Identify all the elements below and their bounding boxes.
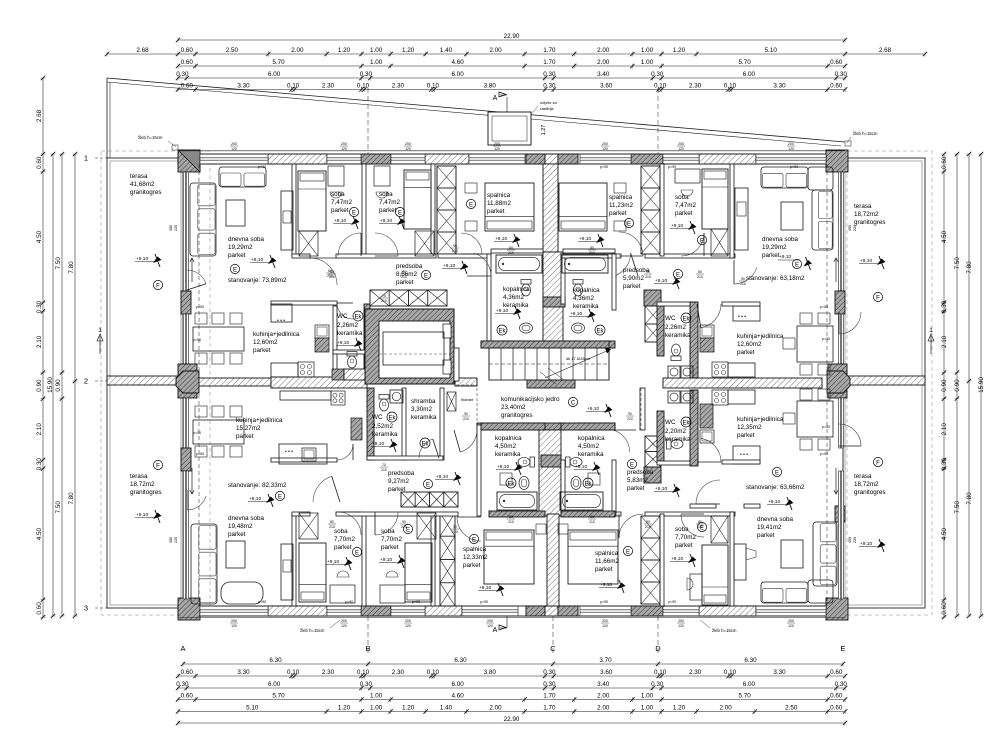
svg-text:90: 90 bbox=[628, 412, 632, 416]
svg-text:0.30: 0.30 bbox=[543, 71, 556, 78]
svg-text:parket: parket bbox=[737, 349, 755, 356]
svg-text:7,47m2: 7,47m2 bbox=[675, 202, 697, 209]
svg-text:70: 70 bbox=[382, 463, 386, 467]
svg-text:granitogres: granitogres bbox=[854, 219, 886, 226]
svg-text:120: 120 bbox=[602, 624, 608, 628]
svg-text:80: 80 bbox=[330, 520, 334, 524]
svg-text:210: 210 bbox=[508, 520, 514, 524]
svg-text:1.40: 1.40 bbox=[440, 705, 453, 712]
svg-text:120: 120 bbox=[341, 624, 347, 628]
svg-text:stanovanje: 82,33m2: stanovanje: 82,33m2 bbox=[228, 482, 287, 489]
svg-text:80: 80 bbox=[509, 515, 513, 519]
svg-text:3.30: 3.30 bbox=[237, 669, 250, 676]
svg-text:120: 120 bbox=[405, 624, 411, 628]
svg-text:1.00: 1.00 bbox=[370, 47, 383, 54]
svg-text:• • •: • • • bbox=[285, 449, 293, 455]
svg-text:120: 120 bbox=[231, 624, 237, 628]
svg-text:7,70m2: 7,70m2 bbox=[675, 534, 697, 541]
svg-text:7,47m2: 7,47m2 bbox=[331, 199, 353, 206]
svg-text:D: D bbox=[655, 644, 661, 653]
svg-text:+9,10: +9,10 bbox=[860, 258, 872, 264]
svg-text:2.30: 2.30 bbox=[689, 669, 702, 676]
svg-text:90: 90 bbox=[464, 412, 468, 416]
svg-text:7.50: 7.50 bbox=[55, 501, 62, 514]
svg-text:0.60: 0.60 bbox=[181, 669, 194, 676]
svg-text:granitogres: granitogres bbox=[854, 489, 886, 496]
svg-text:3.80: 3.80 bbox=[484, 669, 497, 676]
svg-text:2.00: 2.00 bbox=[489, 47, 502, 54]
svg-text:E: E bbox=[398, 210, 402, 216]
svg-text:stanovanje: 73,89m2: stanovanje: 73,89m2 bbox=[228, 277, 287, 284]
svg-text:Ek: Ek bbox=[354, 314, 362, 320]
svg-text:hidrant: hidrant bbox=[461, 397, 474, 402]
svg-text:0.90: 0.90 bbox=[954, 379, 961, 392]
svg-text:terasa: terasa bbox=[854, 203, 872, 210]
svg-text:80: 80 bbox=[509, 246, 513, 250]
svg-text:4.50: 4.50 bbox=[36, 528, 43, 541]
svg-text:120: 120 bbox=[231, 147, 237, 151]
svg-text:soba: soba bbox=[381, 528, 395, 535]
svg-text:WC: WC bbox=[665, 419, 676, 426]
svg-text:1.20: 1.20 bbox=[338, 47, 351, 54]
svg-text:2.00: 2.00 bbox=[291, 47, 304, 54]
svg-text:120: 120 bbox=[788, 624, 794, 628]
svg-text:spalnica: spalnica bbox=[487, 192, 511, 199]
svg-text:E: E bbox=[233, 267, 237, 273]
svg-text:120: 120 bbox=[341, 147, 347, 151]
svg-text:rastlinje: rastlinje bbox=[540, 106, 555, 111]
svg-text:12,60m2: 12,60m2 bbox=[253, 339, 278, 346]
svg-text:2.30: 2.30 bbox=[392, 83, 405, 90]
svg-text:p=90: p=90 bbox=[258, 165, 266, 169]
svg-text:200: 200 bbox=[678, 142, 684, 146]
svg-text:2.30: 2.30 bbox=[322, 83, 335, 90]
svg-text:Ek: Ek bbox=[507, 481, 515, 487]
svg-text:1.00: 1.00 bbox=[370, 59, 383, 66]
svg-text:1.20: 1.20 bbox=[402, 705, 415, 712]
svg-text:p=50: p=50 bbox=[822, 425, 830, 429]
svg-text:90: 90 bbox=[741, 277, 745, 281]
svg-text:keramika: keramika bbox=[337, 330, 363, 337]
svg-text:E: E bbox=[278, 494, 282, 500]
svg-text:5.70: 5.70 bbox=[272, 693, 285, 700]
svg-text:2.00: 2.00 bbox=[597, 47, 610, 54]
svg-text:3.30: 3.30 bbox=[773, 83, 786, 90]
svg-text:parket: parket bbox=[609, 210, 627, 217]
svg-text:parket: parket bbox=[595, 566, 613, 573]
svg-text:1.40: 1.40 bbox=[440, 47, 453, 54]
svg-text:+9,10: +9,10 bbox=[479, 585, 491, 591]
svg-text:5,83m2: 5,83m2 bbox=[627, 477, 649, 484]
svg-text:1.70: 1.70 bbox=[543, 59, 556, 66]
svg-text:210: 210 bbox=[697, 275, 703, 279]
svg-text:5.70: 5.70 bbox=[738, 693, 751, 700]
svg-text:granitogres: granitogres bbox=[130, 489, 162, 496]
svg-text:keramika: keramika bbox=[411, 414, 437, 421]
svg-text:2.30: 2.30 bbox=[322, 669, 335, 676]
svg-text:210: 210 bbox=[381, 299, 387, 303]
svg-text:210: 210 bbox=[627, 417, 633, 421]
svg-text:granitogres: granitogres bbox=[501, 412, 533, 419]
svg-text:0.60: 0.60 bbox=[830, 59, 843, 66]
svg-text:19,29m2: 19,29m2 bbox=[228, 244, 253, 251]
svg-text:• • •: • • • bbox=[277, 318, 285, 324]
svg-text:2.68: 2.68 bbox=[879, 47, 892, 54]
svg-text:210: 210 bbox=[645, 525, 651, 529]
svg-text:120: 120 bbox=[678, 624, 684, 628]
svg-text:1.00: 1.00 bbox=[641, 705, 654, 712]
svg-text:E: E bbox=[775, 470, 779, 476]
svg-text:0.60: 0.60 bbox=[941, 156, 948, 169]
svg-text:parket: parket bbox=[331, 207, 349, 214]
svg-text:6.00: 6.00 bbox=[268, 71, 281, 78]
svg-text:0.30: 0.30 bbox=[360, 71, 373, 78]
svg-text:1.00: 1.00 bbox=[641, 693, 654, 700]
svg-text:0.90: 0.90 bbox=[55, 379, 62, 392]
svg-text:210: 210 bbox=[589, 251, 595, 255]
svg-text:E: E bbox=[426, 482, 430, 488]
svg-text:15,27m2: 15,27m2 bbox=[236, 425, 261, 432]
svg-text:stanovanje: 63,18m2: stanovanje: 63,18m2 bbox=[746, 275, 805, 282]
svg-text:450: 450 bbox=[169, 225, 173, 231]
svg-text:E: E bbox=[840, 644, 845, 653]
svg-text:19,41m2: 19,41m2 bbox=[757, 524, 782, 531]
svg-text:parket: parket bbox=[737, 432, 755, 439]
svg-text:dnevna soba: dnevna soba bbox=[228, 236, 265, 243]
svg-text:spalnica: spalnica bbox=[463, 546, 487, 553]
svg-text:120: 120 bbox=[494, 147, 500, 151]
svg-text:2.30: 2.30 bbox=[392, 669, 405, 676]
svg-text:7.80: 7.80 bbox=[68, 261, 75, 274]
svg-text:0,10: 0,10 bbox=[427, 83, 440, 90]
svg-text:p=90: p=90 bbox=[412, 600, 420, 604]
svg-text:4.50: 4.50 bbox=[941, 230, 948, 243]
svg-text:0,10: 0,10 bbox=[287, 83, 300, 90]
svg-text:predsoba: predsoba bbox=[388, 470, 415, 477]
svg-text:0.30: 0.30 bbox=[543, 681, 556, 688]
svg-text:6.30: 6.30 bbox=[454, 657, 467, 664]
svg-text:predsoba: predsoba bbox=[396, 263, 423, 270]
svg-text:parket: parket bbox=[487, 208, 505, 215]
svg-text:dnevna soba: dnevna soba bbox=[762, 236, 799, 243]
svg-text:WC: WC bbox=[337, 313, 348, 320]
svg-text:3.60: 3.60 bbox=[600, 669, 613, 676]
svg-text:p=90: p=90 bbox=[600, 165, 608, 169]
svg-text:2.68: 2.68 bbox=[36, 109, 43, 122]
svg-text:2.00: 2.00 bbox=[719, 705, 732, 712]
svg-text:2.50: 2.50 bbox=[785, 705, 798, 712]
svg-text:0.30: 0.30 bbox=[360, 681, 373, 688]
svg-text:stanovanje: 63,66m2: stanovanje: 63,66m2 bbox=[746, 484, 805, 491]
svg-text:odprto za: odprto za bbox=[540, 100, 557, 105]
svg-text:predsoba: predsoba bbox=[627, 469, 654, 476]
svg-text:F: F bbox=[876, 295, 880, 301]
svg-text:0.30: 0.30 bbox=[543, 669, 556, 676]
svg-text:6.00: 6.00 bbox=[268, 681, 281, 688]
svg-text:0,10: 0,10 bbox=[357, 83, 370, 90]
svg-text:granitogres: granitogres bbox=[130, 189, 162, 196]
svg-text:6.00: 6.00 bbox=[743, 681, 756, 688]
svg-text:200: 200 bbox=[602, 142, 608, 146]
svg-text:šk 17.5/28cm: šk 17.5/28cm bbox=[566, 356, 590, 361]
svg-text:120: 120 bbox=[678, 147, 684, 151]
svg-text:+9,10: +9,10 bbox=[380, 557, 392, 563]
svg-text:3.60: 3.60 bbox=[600, 83, 613, 90]
svg-text:4.60: 4.60 bbox=[451, 693, 464, 700]
svg-text:200: 200 bbox=[405, 142, 411, 146]
svg-text:E: E bbox=[352, 210, 356, 216]
svg-text:12,35m2: 12,35m2 bbox=[737, 424, 762, 431]
svg-text:220: 220 bbox=[853, 225, 857, 231]
svg-text:200: 200 bbox=[487, 619, 493, 623]
svg-text:0.60: 0.60 bbox=[830, 705, 843, 712]
svg-text:+9,10: +9,10 bbox=[136, 512, 148, 518]
svg-text:2.50: 2.50 bbox=[226, 47, 239, 54]
svg-text:keramika: keramika bbox=[578, 451, 604, 458]
svg-text:+9,10: +9,10 bbox=[334, 218, 346, 224]
svg-text:žleb h=15cm: žleb h=15cm bbox=[138, 135, 163, 140]
svg-text:80: 80 bbox=[698, 520, 702, 524]
svg-text:komunikacijsko jedro: komunikacijsko jedro bbox=[501, 396, 560, 403]
svg-text:7.80: 7.80 bbox=[966, 492, 973, 505]
svg-text:120: 120 bbox=[487, 624, 493, 628]
svg-text:+9,10: +9,10 bbox=[496, 308, 508, 314]
svg-text:parket: parket bbox=[396, 279, 414, 286]
svg-text:kuhinja+jedilnica: kuhinja+jedilnica bbox=[737, 333, 784, 340]
svg-text:A: A bbox=[493, 627, 498, 634]
svg-text:Ek: Ek bbox=[682, 420, 690, 426]
svg-text:2.68: 2.68 bbox=[136, 47, 149, 54]
svg-text:WC: WC bbox=[665, 315, 676, 322]
svg-text:žleb h=15cm: žleb h=15cm bbox=[300, 628, 325, 633]
svg-text:90: 90 bbox=[646, 270, 650, 274]
svg-text:19,48m2: 19,48m2 bbox=[228, 523, 253, 530]
svg-text:0.30: 0.30 bbox=[835, 681, 848, 688]
svg-text:5.70: 5.70 bbox=[272, 59, 285, 66]
svg-text:4,36m2: 4,36m2 bbox=[503, 294, 525, 301]
svg-text:7.50: 7.50 bbox=[55, 257, 62, 270]
svg-text:80: 80 bbox=[590, 246, 594, 250]
svg-text:+9,10: +9,10 bbox=[249, 496, 261, 502]
svg-text:2.10: 2.10 bbox=[941, 335, 948, 348]
svg-text:7.50: 7.50 bbox=[954, 257, 961, 270]
svg-text:parket: parket bbox=[236, 433, 254, 440]
svg-text:0,10: 0,10 bbox=[724, 669, 737, 676]
svg-text:2,26m2: 2,26m2 bbox=[337, 322, 359, 329]
svg-text:1.27: 1.27 bbox=[541, 125, 547, 136]
svg-text:200: 200 bbox=[405, 619, 411, 623]
svg-text:soba: soba bbox=[675, 194, 689, 201]
svg-text:E: E bbox=[630, 462, 634, 468]
svg-text:0.30: 0.30 bbox=[941, 300, 948, 313]
svg-text:11,23m2: 11,23m2 bbox=[609, 202, 634, 209]
svg-text:4.50: 4.50 bbox=[36, 230, 43, 243]
svg-text:80: 80 bbox=[590, 515, 594, 519]
svg-text:terasa: terasa bbox=[854, 473, 872, 480]
svg-text:0,10: 0,10 bbox=[287, 669, 300, 676]
svg-text:220: 220 bbox=[174, 225, 178, 231]
svg-text:0.90: 0.90 bbox=[36, 379, 43, 392]
svg-text:120: 120 bbox=[788, 147, 794, 151]
svg-text:parket: parket bbox=[381, 544, 399, 551]
svg-text:kopalnica: kopalnica bbox=[578, 435, 605, 442]
svg-text:0.30: 0.30 bbox=[651, 681, 664, 688]
svg-text:1.20: 1.20 bbox=[402, 47, 415, 54]
svg-text:+9,10: +9,10 bbox=[860, 541, 872, 547]
svg-text:90: 90 bbox=[402, 270, 406, 274]
svg-text:5.10: 5.10 bbox=[765, 47, 778, 54]
svg-text:200: 200 bbox=[231, 619, 237, 623]
svg-text:2.00: 2.00 bbox=[597, 693, 610, 700]
svg-text:0,10: 0,10 bbox=[357, 669, 370, 676]
svg-text:200: 200 bbox=[494, 142, 500, 146]
svg-text:1.20: 1.20 bbox=[338, 705, 351, 712]
svg-text:0.60: 0.60 bbox=[830, 83, 843, 90]
svg-text:C: C bbox=[571, 400, 576, 406]
svg-text:450: 450 bbox=[848, 537, 852, 543]
svg-text:18,72m2: 18,72m2 bbox=[130, 481, 155, 488]
svg-text:terasa: terasa bbox=[130, 173, 148, 180]
svg-text:p=90: p=90 bbox=[600, 600, 608, 604]
svg-text:p=90: p=90 bbox=[668, 600, 676, 604]
svg-text:dnevna soba: dnevna soba bbox=[757, 516, 794, 523]
svg-text:0.30: 0.30 bbox=[36, 300, 43, 313]
svg-text:7.80: 7.80 bbox=[966, 261, 973, 274]
svg-text:0,10: 0,10 bbox=[427, 669, 440, 676]
svg-text:15.90: 15.90 bbox=[978, 377, 985, 393]
svg-text:0.60: 0.60 bbox=[941, 602, 948, 615]
svg-text:0.30: 0.30 bbox=[835, 71, 848, 78]
svg-text:1.00: 1.00 bbox=[370, 705, 383, 712]
svg-text:4,36m2: 4,36m2 bbox=[573, 295, 595, 302]
svg-text:9,27m2: 9,27m2 bbox=[388, 478, 410, 485]
svg-text:kopalnica: kopalnica bbox=[573, 287, 600, 294]
svg-text:parket: parket bbox=[623, 283, 641, 290]
svg-text:210: 210 bbox=[697, 525, 703, 529]
svg-text:220: 220 bbox=[174, 537, 178, 543]
svg-text:6.00: 6.00 bbox=[743, 71, 756, 78]
svg-text:soba: soba bbox=[379, 191, 393, 198]
svg-text:2,52m2: 2,52m2 bbox=[372, 423, 394, 430]
svg-text:1.00: 1.00 bbox=[641, 59, 654, 66]
svg-text:210: 210 bbox=[508, 251, 514, 255]
svg-text:F: F bbox=[876, 460, 880, 466]
svg-text:70: 70 bbox=[382, 294, 386, 298]
svg-text:0.30: 0.30 bbox=[176, 71, 189, 78]
svg-text:0,10: 0,10 bbox=[724, 83, 737, 90]
svg-text:3.80: 3.80 bbox=[484, 83, 497, 90]
svg-text:+9,10: +9,10 bbox=[136, 256, 148, 262]
svg-text:+9,10: +9,10 bbox=[436, 474, 448, 480]
svg-text:terasa: terasa bbox=[130, 473, 148, 480]
svg-text:0,10: 0,10 bbox=[654, 83, 667, 90]
svg-text:450: 450 bbox=[848, 225, 852, 231]
svg-text:parket: parket bbox=[675, 542, 693, 549]
svg-text:3: 3 bbox=[84, 604, 88, 613]
svg-text:p=50: p=50 bbox=[193, 338, 201, 342]
svg-text:+9,10: +9,10 bbox=[671, 223, 683, 229]
svg-text:p=90: p=90 bbox=[258, 600, 266, 604]
svg-text:keramika: keramika bbox=[495, 451, 521, 458]
svg-text:210: 210 bbox=[452, 530, 458, 534]
svg-text:+9,10: +9,10 bbox=[251, 257, 263, 263]
svg-text:keramika: keramika bbox=[665, 436, 691, 443]
svg-text:Ek: Ek bbox=[682, 316, 690, 322]
svg-text:210: 210 bbox=[589, 520, 595, 524]
svg-text:+9,10: +9,10 bbox=[655, 486, 667, 492]
svg-text:22.90: 22.90 bbox=[504, 716, 520, 723]
svg-text:450: 450 bbox=[169, 537, 173, 543]
svg-text:E: E bbox=[355, 550, 359, 556]
svg-text:1.20: 1.20 bbox=[673, 705, 686, 712]
svg-text:11,66m2: 11,66m2 bbox=[595, 558, 620, 565]
svg-text:A: A bbox=[493, 95, 498, 102]
svg-text:80: 80 bbox=[330, 270, 334, 274]
svg-text:200: 200 bbox=[788, 142, 794, 146]
svg-text:1: 1 bbox=[98, 327, 102, 334]
svg-text:19,29m2: 19,29m2 bbox=[762, 244, 787, 251]
svg-text:0.60: 0.60 bbox=[36, 156, 43, 169]
svg-text:4,50m2: 4,50m2 bbox=[495, 443, 517, 450]
svg-text:F: F bbox=[156, 283, 160, 289]
svg-text:3.40: 3.40 bbox=[597, 71, 610, 78]
svg-text:A: A bbox=[180, 644, 185, 653]
svg-text:+9,10: +9,10 bbox=[579, 236, 591, 242]
svg-text:210: 210 bbox=[740, 282, 746, 286]
svg-text:keramika: keramika bbox=[665, 332, 691, 339]
svg-text:• • •: • • • bbox=[738, 314, 746, 320]
svg-text:keramika: keramika bbox=[573, 303, 599, 310]
svg-text:2.10: 2.10 bbox=[36, 335, 43, 348]
svg-text:+9,10: +9,10 bbox=[380, 218, 392, 224]
svg-text:7,70m2: 7,70m2 bbox=[334, 536, 356, 543]
svg-text:7.50: 7.50 bbox=[954, 501, 961, 514]
svg-text:210: 210 bbox=[329, 275, 335, 279]
svg-text:• • •: • • • bbox=[740, 452, 748, 458]
svg-text:kuhinja+jedilnica: kuhinja+jedilnica bbox=[236, 417, 283, 424]
svg-text:4.50: 4.50 bbox=[941, 528, 948, 541]
svg-text:18,72m2: 18,72m2 bbox=[854, 481, 879, 488]
svg-text:0.60: 0.60 bbox=[181, 693, 194, 700]
svg-text:0.60: 0.60 bbox=[830, 669, 843, 676]
svg-text:0.30: 0.30 bbox=[176, 681, 189, 688]
svg-text:parket: parket bbox=[228, 252, 246, 259]
svg-text:4,50m2: 4,50m2 bbox=[578, 443, 600, 450]
svg-text:+9,10: +9,10 bbox=[327, 559, 339, 565]
svg-text:3.30: 3.30 bbox=[773, 669, 786, 676]
svg-text:F: F bbox=[156, 463, 160, 469]
svg-text:90: 90 bbox=[402, 520, 406, 524]
svg-text:6.30: 6.30 bbox=[744, 657, 757, 664]
svg-text:12,33m2: 12,33m2 bbox=[463, 554, 488, 561]
svg-text:2.30: 2.30 bbox=[689, 83, 702, 90]
svg-text:5,90m2: 5,90m2 bbox=[623, 275, 645, 282]
svg-text:žleb h=15cm: žleb h=15cm bbox=[712, 628, 737, 633]
svg-text:3.70: 3.70 bbox=[599, 657, 612, 664]
svg-text:0.30: 0.30 bbox=[651, 71, 664, 78]
svg-text:parket: parket bbox=[463, 562, 481, 569]
svg-text:+9,10: +9,10 bbox=[655, 278, 667, 284]
svg-text:parket: parket bbox=[379, 207, 397, 214]
svg-text:kuhinja+jedilnica: kuhinja+jedilnica bbox=[737, 416, 784, 423]
svg-text:+9,10: +9,10 bbox=[600, 582, 612, 588]
svg-text:Ek: Ek bbox=[388, 415, 396, 421]
svg-text:p=50: p=50 bbox=[196, 452, 204, 456]
svg-text:E: E bbox=[627, 221, 631, 227]
svg-text:90: 90 bbox=[646, 520, 650, 524]
svg-text:23,40m2: 23,40m2 bbox=[501, 404, 526, 411]
svg-text:2.00: 2.00 bbox=[489, 705, 502, 712]
